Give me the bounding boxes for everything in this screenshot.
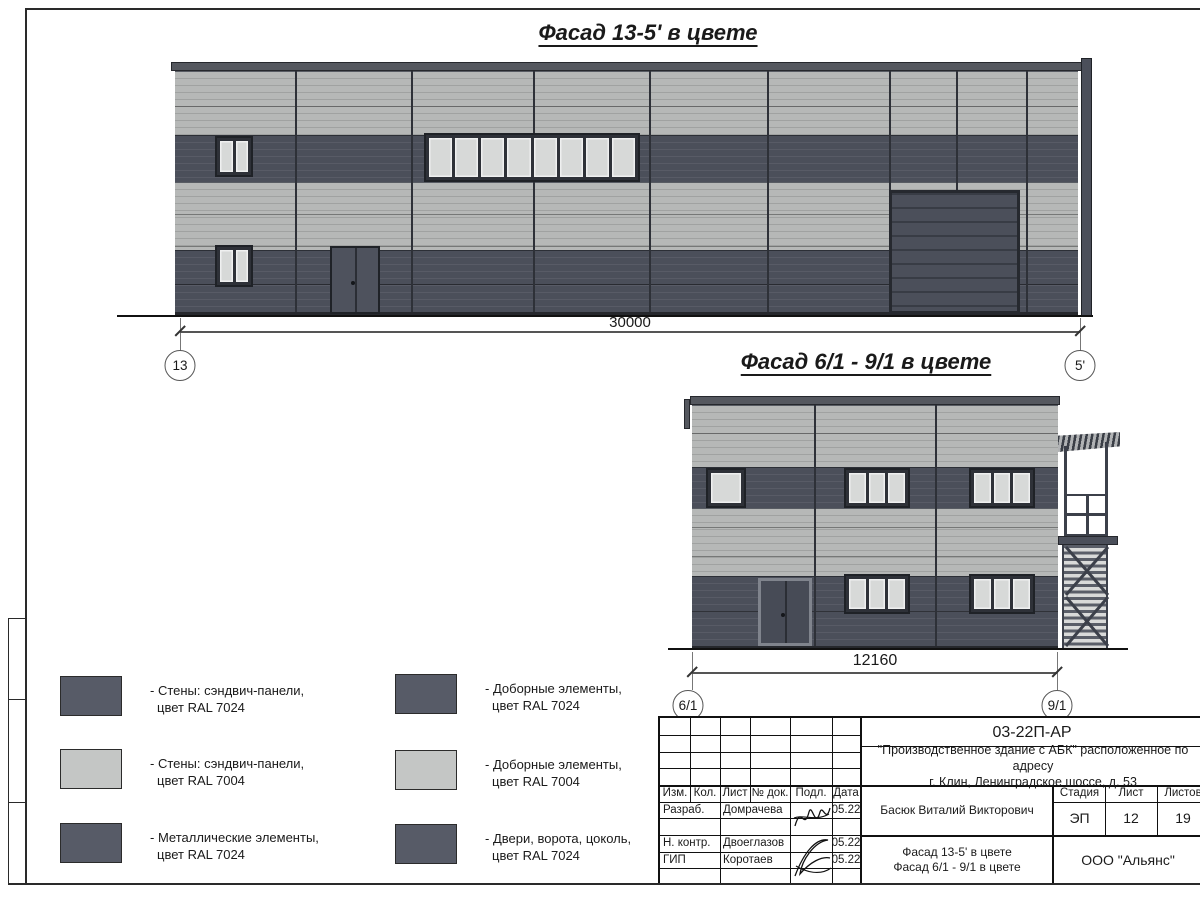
window-pane bbox=[888, 473, 905, 503]
door-split bbox=[785, 581, 787, 643]
bay-line bbox=[411, 71, 413, 312]
tb-sheets-label: Листов bbox=[1157, 785, 1200, 802]
ground-line bbox=[117, 315, 1093, 317]
tb-engineer: Басюк Виталий Викторович bbox=[862, 787, 1052, 834]
ribbon-window bbox=[424, 133, 640, 182]
window-pane bbox=[481, 138, 504, 177]
tb-stage-value: ЭП bbox=[1054, 803, 1105, 834]
frame-left bbox=[25, 8, 27, 885]
facade2-title: Фасад 6/1 - 9/1 в цвете bbox=[741, 349, 992, 375]
window-pane bbox=[869, 473, 886, 503]
dimension-line bbox=[180, 331, 1080, 333]
side-stamp-divider bbox=[8, 699, 26, 700]
facade-6-9-drawing bbox=[692, 396, 1058, 650]
tb-project-name: "Производственное здание с АБК" располож… bbox=[864, 747, 1200, 785]
window-pane bbox=[220, 250, 233, 282]
window-1pane bbox=[706, 468, 746, 508]
band-light-upper bbox=[175, 71, 1078, 135]
tb-role: Н. контр. bbox=[660, 835, 720, 852]
tb-drawing-title: Фасад 13-5' в цвете Фасад 6/1 - 9/1 в цв… bbox=[862, 837, 1052, 883]
side-stamp-line bbox=[8, 618, 9, 885]
parapet-coping bbox=[171, 62, 1082, 71]
stair-screen bbox=[1062, 545, 1108, 648]
window-3pane bbox=[844, 468, 910, 508]
legend-item: - Доборные элементы, цвет RAL 7024 bbox=[395, 674, 622, 714]
color-swatch-ral7024 bbox=[60, 823, 122, 863]
window-pane bbox=[974, 473, 991, 503]
window-pane bbox=[560, 138, 583, 177]
tb-sheet-value: 12 bbox=[1105, 803, 1157, 834]
legend-item: - Стены: сэндвич-панели, цвет RAL 7024 bbox=[60, 676, 304, 716]
door-split bbox=[355, 248, 357, 312]
band-light-lower bbox=[692, 508, 1058, 576]
stair-canopy bbox=[1058, 432, 1120, 452]
legend-item: - Доборные элементы, цвет RAL 7004 bbox=[395, 750, 622, 790]
window-pane bbox=[586, 138, 609, 177]
wall-sliver bbox=[684, 399, 690, 429]
bay-line bbox=[533, 71, 535, 312]
window-pane bbox=[888, 579, 905, 609]
tb-company: ООО "Альянс" bbox=[1054, 837, 1200, 883]
legend-item: - Двери, ворота, цоколь, цвет RAL 7024 bbox=[395, 824, 631, 864]
extension-line bbox=[1080, 318, 1081, 352]
window-pane bbox=[849, 473, 866, 503]
dimension-label: 12160 bbox=[853, 652, 898, 670]
entrance-door bbox=[330, 246, 380, 314]
legend-item: - Металлические элементы, цвет RAL 7024 bbox=[60, 823, 319, 863]
title-block: Изм. Кол. Лист № док. Подл. Дата Разраб.… bbox=[658, 716, 1200, 883]
tb-role: Разраб. bbox=[660, 802, 720, 818]
window-pane bbox=[1013, 579, 1030, 609]
window-pane bbox=[455, 138, 478, 177]
tb-date: 05.22 bbox=[832, 802, 860, 818]
bay-line bbox=[767, 71, 769, 312]
window-pane bbox=[869, 579, 886, 609]
bay-line bbox=[1026, 71, 1028, 312]
color-swatch-ral7004 bbox=[60, 749, 122, 789]
window-pane bbox=[994, 473, 1011, 503]
window-pane bbox=[974, 579, 991, 609]
parapet-coping bbox=[690, 396, 1060, 405]
legend-label: - Стены: сэндвич-панели, цвет RAL 7004 bbox=[150, 749, 304, 789]
window-2pane-upper bbox=[215, 136, 253, 177]
signature bbox=[790, 832, 834, 882]
tb-col-izm: Изм. bbox=[660, 785, 690, 802]
tb-sheet-label: Лист bbox=[1105, 785, 1157, 802]
facade1-title: Фасад 13-5' в цвете bbox=[538, 20, 757, 46]
signature bbox=[791, 800, 833, 836]
legend-label: - Доборные элементы, цвет RAL 7024 bbox=[485, 674, 622, 714]
window-3pane bbox=[969, 468, 1035, 508]
cross-bracing bbox=[1064, 545, 1110, 648]
window-pane bbox=[236, 250, 249, 282]
extension-line bbox=[180, 318, 181, 352]
frame-top bbox=[25, 8, 1200, 10]
sectional-gate bbox=[889, 190, 1020, 314]
window-pane bbox=[711, 473, 741, 503]
bay-line-partial bbox=[956, 71, 958, 190]
axis-bubble-5: 5' bbox=[1065, 350, 1096, 381]
tb-person: Двоеглазов bbox=[720, 835, 790, 852]
tb-date: 05.22 bbox=[832, 852, 860, 868]
tb-col-ndok: № док. bbox=[750, 785, 790, 802]
tb-col-kol: Кол. bbox=[690, 785, 720, 802]
tb-person: Коротаев bbox=[720, 852, 790, 868]
landing-slab bbox=[1058, 536, 1118, 545]
window-2pane-lower bbox=[215, 245, 253, 287]
window-3pane bbox=[844, 574, 910, 614]
entrance-door bbox=[758, 578, 812, 646]
tb-role: ГИП bbox=[660, 852, 720, 868]
frame-bottom bbox=[8, 883, 1200, 885]
window-pane bbox=[236, 141, 249, 172]
tb-date: 05.22 bbox=[832, 835, 860, 852]
bay-line bbox=[295, 71, 297, 312]
facade-13-5-drawing bbox=[175, 62, 1078, 318]
window-3pane bbox=[969, 574, 1035, 614]
window-pane bbox=[220, 141, 233, 172]
window-pane bbox=[507, 138, 530, 177]
color-swatch-ral7024 bbox=[395, 824, 457, 864]
color-swatch-ral7024 bbox=[60, 676, 122, 716]
dimension-line bbox=[692, 672, 1057, 674]
railing-bar bbox=[1066, 513, 1106, 516]
window-pane bbox=[994, 579, 1011, 609]
legend-label: - Доборные элементы, цвет RAL 7004 bbox=[485, 750, 622, 790]
bay-line bbox=[814, 405, 816, 646]
external-stair-tower bbox=[1058, 432, 1120, 650]
side-stamp-divider bbox=[8, 802, 26, 803]
drawing-sheet: Фасад 13-5' в цвете bbox=[0, 0, 1200, 900]
legend-label: - Двери, ворота, цоколь, цвет RAL 7024 bbox=[485, 824, 631, 864]
tb-sheets-value: 19 bbox=[1157, 803, 1200, 834]
color-swatch-ral7024 bbox=[395, 674, 457, 714]
tb-person: Домрачева bbox=[720, 802, 790, 818]
side-stamp-divider bbox=[8, 618, 26, 619]
window-pane bbox=[429, 138, 452, 177]
tb-stage-label: Стадия bbox=[1054, 785, 1105, 802]
balcony-railing bbox=[1064, 494, 1108, 536]
window-pane bbox=[849, 579, 866, 609]
axis-bubble-13: 13 bbox=[165, 350, 196, 381]
tb-col-data: Дата bbox=[832, 785, 860, 802]
dimension-label: 30000 bbox=[609, 314, 651, 331]
tb-col-list: Лист bbox=[720, 785, 750, 802]
legend-label: - Металлические элементы, цвет RAL 7024 bbox=[150, 823, 319, 863]
legend-label: - Стены: сэндвич-панели, цвет RAL 7024 bbox=[150, 676, 304, 716]
color-swatch-ral7004 bbox=[395, 750, 457, 790]
corner-return-wall bbox=[1081, 58, 1092, 317]
bay-line bbox=[649, 71, 651, 312]
ground-line bbox=[668, 648, 1128, 650]
bay-line bbox=[935, 405, 937, 646]
band-light-upper bbox=[692, 405, 1058, 467]
window-pane bbox=[1013, 473, 1030, 503]
window-pane bbox=[612, 138, 635, 177]
legend-item: - Стены: сэндвич-панели, цвет RAL 7004 bbox=[60, 749, 304, 789]
window-pane bbox=[534, 138, 557, 177]
